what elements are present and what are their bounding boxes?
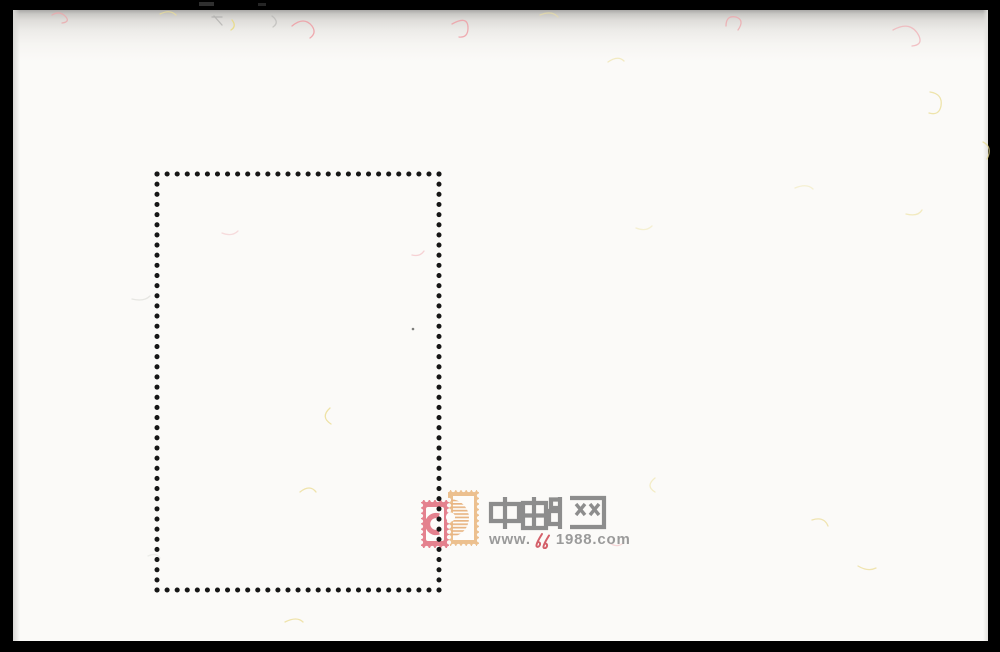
stamp-logo-icon bbox=[419, 486, 481, 550]
script-e-mark-icon bbox=[534, 532, 553, 549]
photo-background: www. 1988.com bbox=[0, 0, 1000, 652]
site-name-glyphs bbox=[488, 494, 610, 532]
site-url: www. 1988.com bbox=[489, 531, 631, 548]
url-prefix: www. bbox=[489, 531, 531, 548]
url-suffix: 1988.com bbox=[556, 531, 631, 548]
pink-stamp-shape bbox=[419, 498, 451, 550]
